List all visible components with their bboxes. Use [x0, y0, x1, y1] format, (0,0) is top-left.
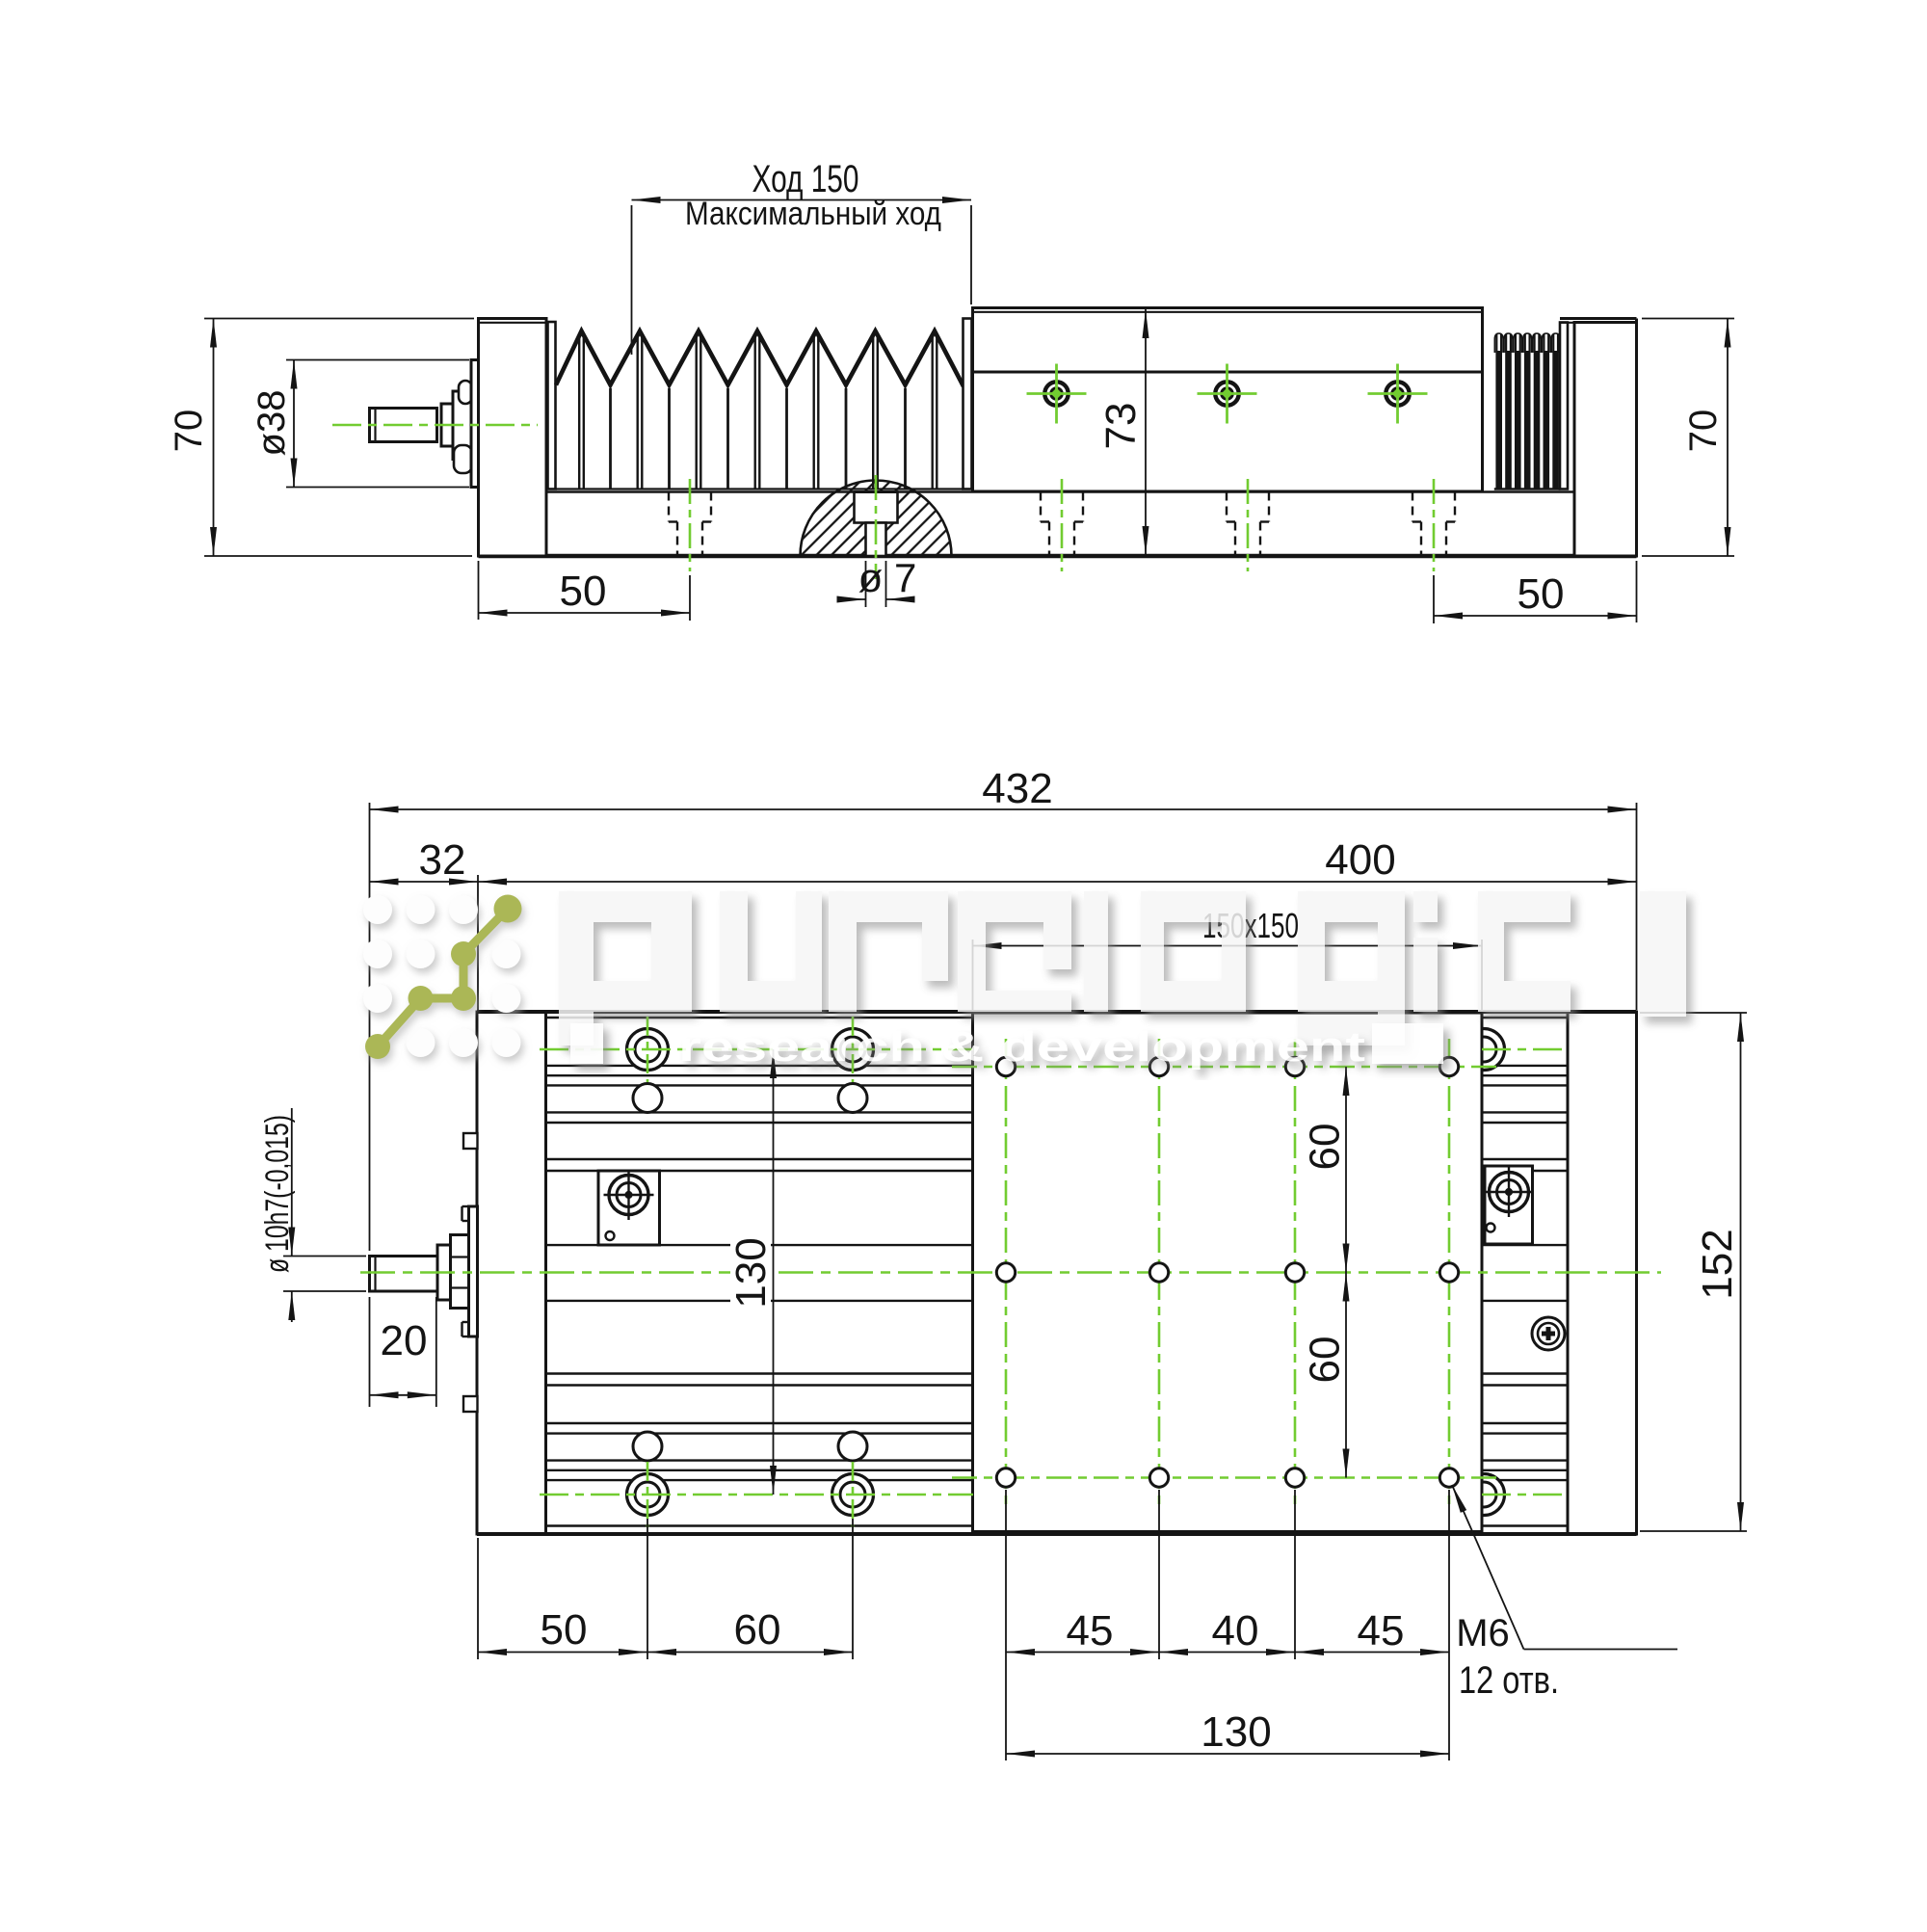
svg-text:20: 20 [381, 1317, 428, 1364]
svg-text:60: 60 [1302, 1124, 1349, 1171]
svg-text:12 отв.: 12 отв. [1459, 1659, 1559, 1702]
svg-text:50: 50 [541, 1606, 588, 1654]
svg-text:ø 10h7(-0,015): ø 10h7(-0,015) [259, 1115, 296, 1273]
svg-text:ø 7: ø 7 [858, 555, 917, 600]
svg-text:50: 50 [560, 568, 607, 615]
svg-text:45: 45 [1067, 1607, 1114, 1654]
svg-text:M6: M6 [1456, 1612, 1510, 1654]
svg-text:60: 60 [734, 1606, 781, 1654]
svg-text:60: 60 [1302, 1337, 1349, 1384]
svg-text:40: 40 [1212, 1607, 1259, 1654]
svg-text:130: 130 [1201, 1708, 1271, 1756]
svg-text:432: 432 [982, 765, 1052, 812]
svg-text:Максимальный ход: Максимальный ход [685, 196, 941, 232]
svg-text:32: 32 [419, 836, 466, 884]
svg-text:50: 50 [1518, 570, 1565, 618]
svg-text:Ход 150: Ход 150 [752, 158, 859, 200]
svg-text:130: 130 [727, 1237, 775, 1308]
svg-text:73: 73 [1097, 403, 1145, 450]
svg-text:70: 70 [168, 410, 210, 453]
svg-text:ø38: ø38 [251, 390, 293, 457]
svg-text:70: 70 [1682, 410, 1725, 453]
svg-text:research & development: research & development [678, 1023, 1365, 1071]
svg-text:45: 45 [1358, 1607, 1405, 1654]
svg-text:400: 400 [1325, 836, 1395, 884]
svg-text:152: 152 [1694, 1229, 1741, 1299]
